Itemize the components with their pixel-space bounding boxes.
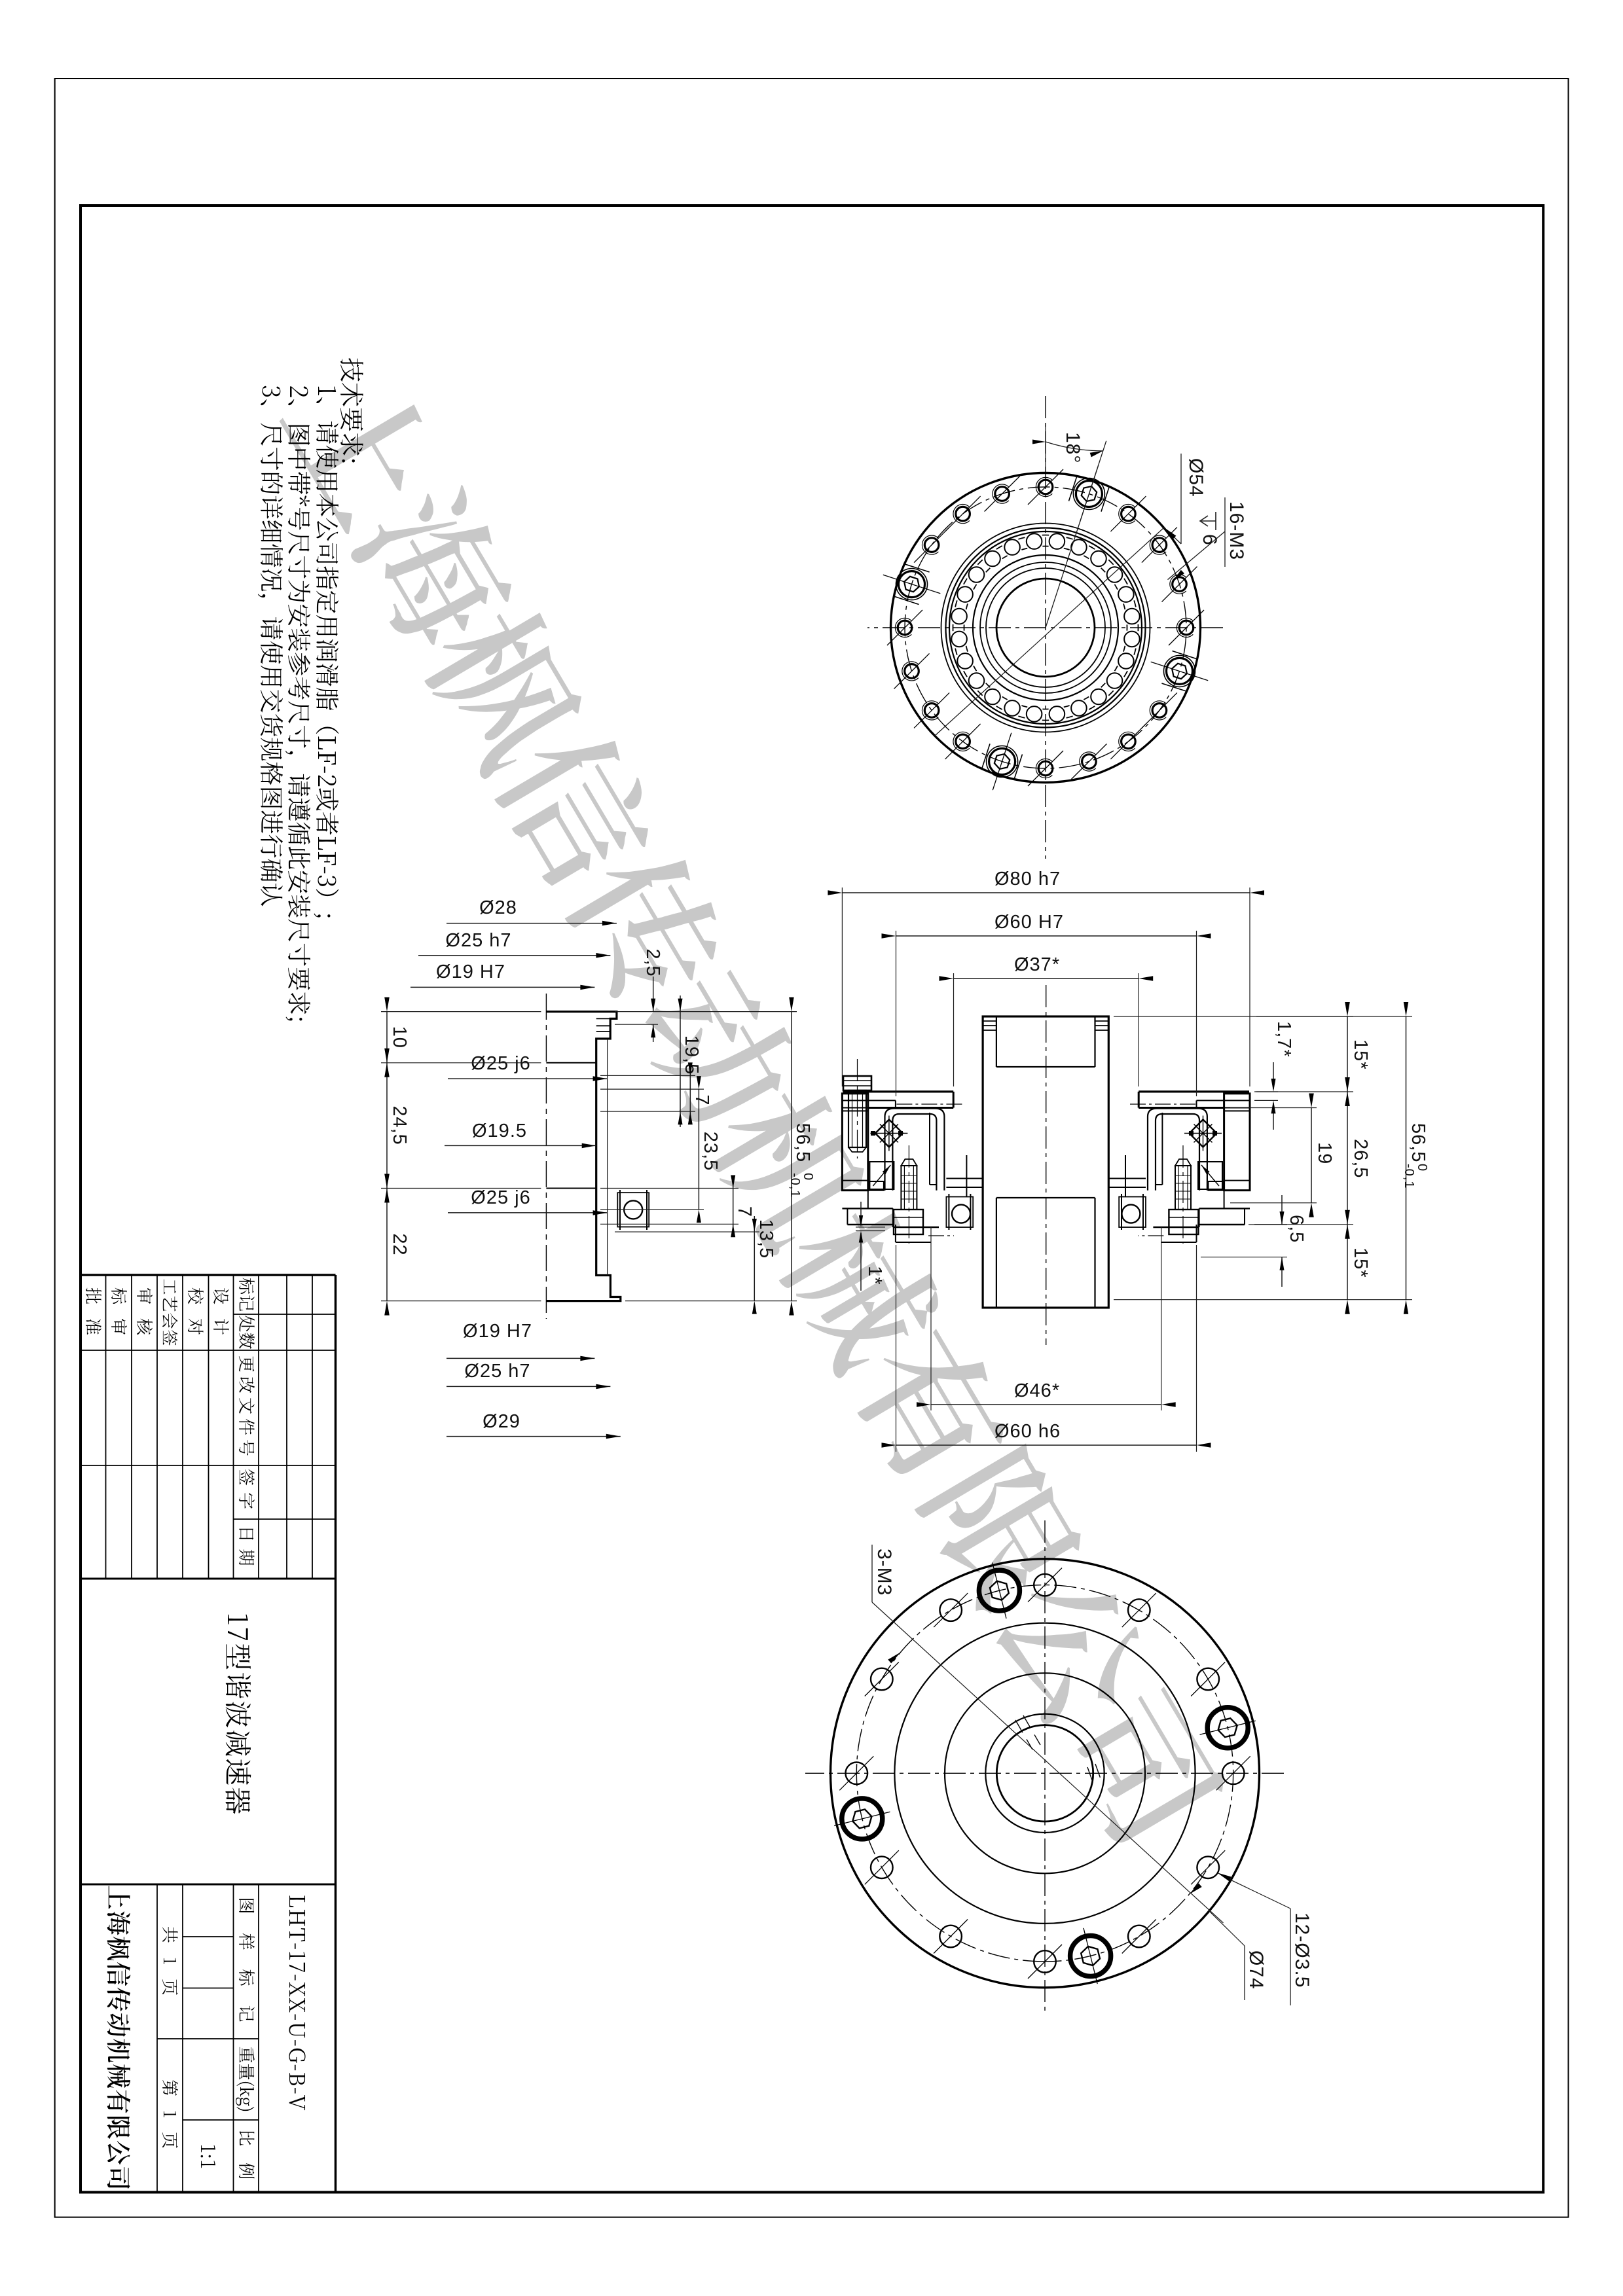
svg-text:2,5: 2,5 xyxy=(642,948,663,977)
svg-text:Ø25 h7: Ø25 h7 xyxy=(464,1361,530,1382)
svg-text:Ø80 h7: Ø80 h7 xyxy=(994,869,1061,889)
svg-text:23,5: 23,5 xyxy=(700,1132,721,1171)
svg-text:7: 7 xyxy=(691,1094,712,1105)
svg-text:Ø54: Ø54 xyxy=(1185,458,1207,497)
svg-text:Ø19 H7: Ø19 H7 xyxy=(463,1321,532,1342)
svg-text:Ø60 H7: Ø60 H7 xyxy=(994,912,1064,933)
svg-text:Ø74: Ø74 xyxy=(1245,1950,1267,1990)
svg-text:Ø29: Ø29 xyxy=(483,1411,520,1432)
svg-text:-0,1: -0,1 xyxy=(1402,1164,1416,1189)
svg-text:Ø25 h7: Ø25 h7 xyxy=(445,930,511,951)
svg-text:19: 19 xyxy=(1314,1142,1335,1164)
svg-text:1,7*: 1,7* xyxy=(1273,1021,1294,1058)
svg-text:0: 0 xyxy=(1415,1164,1429,1172)
svg-text:0: 0 xyxy=(801,1173,815,1181)
svg-text:56,5: 56,5 xyxy=(792,1123,813,1162)
svg-text:22: 22 xyxy=(389,1233,410,1255)
svg-text:Ø25 j6: Ø25 j6 xyxy=(471,1053,530,1074)
svg-text:7: 7 xyxy=(734,1206,755,1217)
svg-text:Ø19.5: Ø19.5 xyxy=(472,1121,527,1141)
svg-text:Ø28: Ø28 xyxy=(479,897,517,918)
svg-text:18°: 18° xyxy=(1062,432,1084,463)
svg-text:Ø25 j6: Ø25 j6 xyxy=(471,1187,530,1208)
svg-text:Ø19 H7: Ø19 H7 xyxy=(436,961,505,982)
svg-text:1*: 1* xyxy=(864,1266,885,1285)
svg-text:15*: 15* xyxy=(1350,1039,1371,1070)
svg-text:56,5: 56,5 xyxy=(1408,1123,1429,1162)
svg-text:3-M3: 3-M3 xyxy=(873,1549,895,1596)
svg-text:Ø60 h6: Ø60 h6 xyxy=(994,1421,1061,1442)
svg-text:24,5: 24,5 xyxy=(389,1105,410,1145)
svg-text:10: 10 xyxy=(389,1026,410,1049)
svg-text:16-M3: 16-M3 xyxy=(1226,501,1247,560)
svg-text:Ø37*: Ø37* xyxy=(1014,954,1060,975)
svg-text:26,5: 26,5 xyxy=(1350,1139,1371,1178)
svg-text:12-Ø3.5: 12-Ø3.5 xyxy=(1291,1912,1313,1988)
svg-text:Ø46*: Ø46* xyxy=(1014,1380,1060,1401)
svg-text:15*: 15* xyxy=(1350,1247,1371,1278)
svg-text:6,5: 6,5 xyxy=(1286,1215,1307,1243)
svg-text:-0,1: -0,1 xyxy=(788,1173,802,1198)
svg-text:13,5: 13,5 xyxy=(756,1219,776,1259)
